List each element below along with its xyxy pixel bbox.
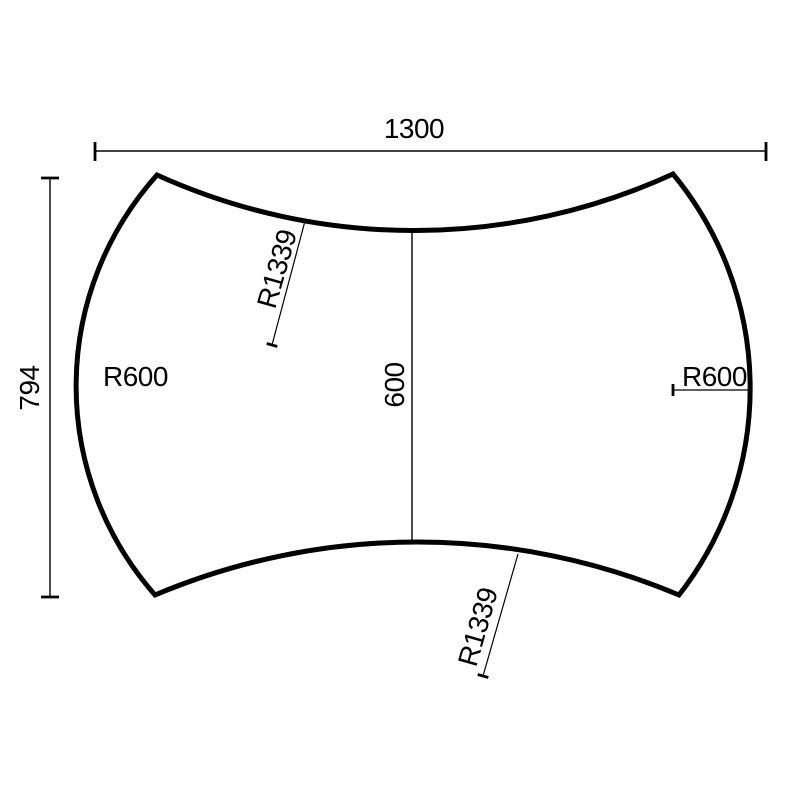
right-radius-dimension: R600 (673, 361, 748, 396)
width-dimension-label: 1300 (384, 113, 444, 144)
center-height-dimension-label: 600 (379, 362, 410, 407)
right-radius-label: R600 (682, 361, 747, 392)
bottom-radius-leader-tick (478, 675, 489, 678)
drawing-canvas: 1300 794 600 R600 R600 R1339 R1339 (0, 0, 800, 800)
height-dimension-label: 794 (14, 365, 45, 410)
bottom-radius-dimension: R1339 (452, 554, 518, 678)
width-dimension: 1300 (95, 113, 766, 161)
left-radius-label: R600 (103, 361, 168, 392)
top-radius-label: R1339 (251, 226, 303, 311)
part-outline (76, 174, 750, 595)
top-radius-dimension: R1339 (251, 221, 305, 347)
center-height-dimension: 600 (379, 231, 412, 542)
top-radius-leader-tick (267, 344, 278, 347)
bottom-radius-label: R1339 (452, 584, 504, 669)
height-dimension: 794 (14, 178, 59, 597)
